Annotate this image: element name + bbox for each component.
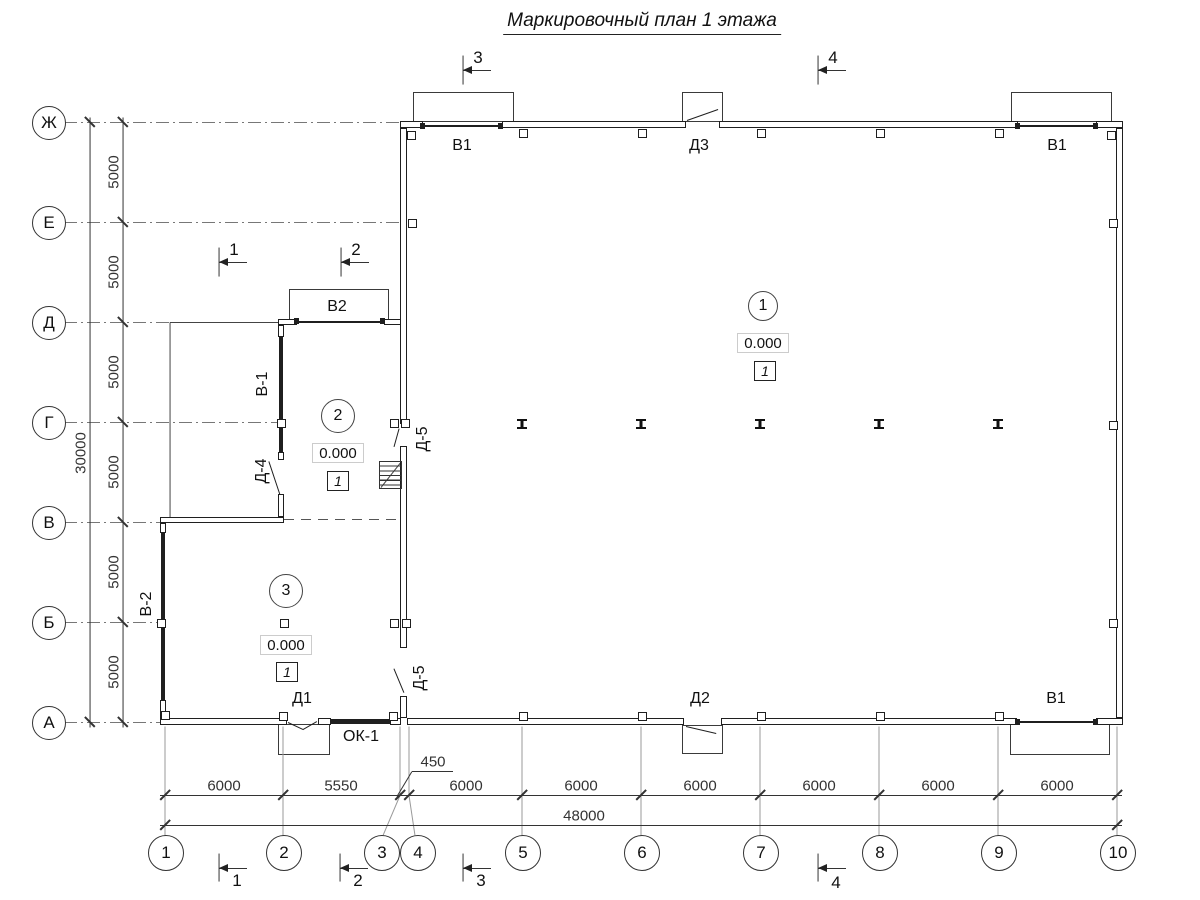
canopy-outline bbox=[1011, 92, 1112, 122]
dimension-text: 5550 bbox=[324, 778, 357, 795]
axis-circle-column: 10 bbox=[1100, 835, 1136, 871]
wall-segment bbox=[719, 121, 1018, 128]
canopy-outline bbox=[1010, 722, 1110, 755]
page-title: Маркировочный план 1 этажа bbox=[503, 10, 781, 35]
stairs-symbol bbox=[379, 461, 402, 489]
axis-circle-row: А bbox=[32, 706, 66, 740]
section-marker-arrow-icon bbox=[219, 864, 228, 872]
dimension-text: 6000 bbox=[921, 778, 954, 795]
i-beam-column bbox=[517, 419, 527, 429]
wall-segment bbox=[278, 494, 284, 517]
extension-line bbox=[1117, 727, 1118, 836]
section-marker-label: 1 bbox=[229, 240, 238, 260]
wall-segment bbox=[1096, 718, 1123, 725]
section-marker-arrow-icon bbox=[818, 864, 827, 872]
axis-line bbox=[64, 222, 400, 223]
extension-line bbox=[760, 727, 761, 836]
opening-label: Д-5 bbox=[411, 665, 429, 690]
pilaster-mark bbox=[638, 129, 647, 138]
pilaster-mark bbox=[995, 712, 1004, 721]
dimension-text: 6000 bbox=[683, 778, 716, 795]
pilaster-mark bbox=[638, 712, 647, 721]
gate-end-mark bbox=[1015, 123, 1020, 129]
opening-label: Д-5 bbox=[414, 426, 432, 451]
extension-line bbox=[409, 795, 416, 835]
pilaster-mark bbox=[402, 619, 411, 628]
pilaster-mark bbox=[1109, 619, 1118, 628]
window-band bbox=[330, 719, 390, 724]
gate-end-mark bbox=[498, 123, 503, 129]
section-marker-arrow-icon bbox=[341, 258, 350, 266]
window-band bbox=[279, 337, 283, 452]
section-marker-label: 4 bbox=[831, 873, 840, 893]
opening-label: ОК-1 bbox=[343, 728, 379, 746]
pilaster-mark bbox=[1109, 219, 1118, 228]
pilaster-mark bbox=[757, 712, 766, 721]
axis-circle-column: 4 bbox=[400, 835, 436, 871]
extension-line bbox=[400, 727, 401, 796]
dimension-text: 5000 bbox=[106, 655, 123, 688]
dimension-text: 48000 bbox=[563, 808, 605, 825]
floor-type-box: 1 bbox=[276, 662, 298, 682]
gate-end-mark bbox=[380, 318, 385, 324]
section-marker-label: 1 bbox=[232, 871, 241, 891]
axis-circle-row: Ж bbox=[32, 106, 66, 140]
pilaster-mark bbox=[876, 129, 885, 138]
canopy-outline bbox=[413, 92, 514, 122]
wall-segment bbox=[400, 696, 407, 718]
pilaster-mark bbox=[757, 129, 766, 138]
axis-circle-column: 1 bbox=[148, 835, 184, 871]
room-number-circle: 1 bbox=[748, 291, 778, 321]
pilaster-mark bbox=[1107, 131, 1116, 140]
opening-label: Д3 bbox=[689, 137, 709, 155]
gate-end-mark bbox=[294, 318, 299, 324]
axis-circle-row: В bbox=[32, 506, 66, 540]
extension-line bbox=[165, 727, 166, 836]
opening-label: В2 bbox=[327, 298, 347, 316]
axis-circle-column: 9 bbox=[981, 835, 1017, 871]
gate-end-mark bbox=[420, 123, 425, 129]
opening-label: Д1 bbox=[292, 690, 312, 708]
axis-circle-row: Е bbox=[32, 206, 66, 240]
i-beam-column bbox=[755, 419, 765, 429]
axis-circle-row: Д bbox=[32, 306, 66, 340]
extension-line bbox=[641, 727, 642, 836]
section-marker-label: 3 bbox=[473, 48, 482, 68]
pilaster-mark bbox=[407, 131, 416, 140]
dimension-text: 5000 bbox=[106, 255, 123, 288]
i-beam-column bbox=[636, 419, 646, 429]
extension-line bbox=[283, 727, 284, 836]
pilaster-mark bbox=[280, 619, 289, 628]
opening-label: Д-4 bbox=[253, 458, 271, 483]
dimension-text: 5000 bbox=[106, 455, 123, 488]
wall-segment bbox=[278, 452, 284, 460]
wall-segment bbox=[1096, 121, 1123, 128]
pilaster-mark bbox=[161, 711, 170, 720]
gate-end-mark bbox=[1093, 719, 1098, 725]
section-marker-arrow-icon bbox=[340, 864, 349, 872]
pilaster-mark bbox=[157, 619, 166, 628]
elevation-box: 0.000 bbox=[737, 333, 789, 353]
i-beam-column bbox=[993, 419, 1003, 429]
extension-line bbox=[879, 727, 880, 836]
opening-label: Д2 bbox=[690, 690, 710, 708]
elevation-box: 0.000 bbox=[312, 443, 364, 463]
dimension-leader bbox=[412, 771, 453, 772]
floor-plan-canvas: Маркировочный план 1 этажа ЖЕДГВБА123456… bbox=[0, 0, 1200, 900]
pilaster-mark bbox=[277, 419, 286, 428]
pilaster-mark bbox=[390, 419, 399, 428]
elevation-box: 0.000 bbox=[260, 635, 312, 655]
door-leaf bbox=[393, 428, 399, 446]
wall-segment bbox=[384, 319, 401, 325]
section-marker-arrow-icon bbox=[463, 66, 472, 74]
wall-segment bbox=[160, 718, 287, 725]
axis-circle-column: 6 bbox=[624, 835, 660, 871]
dimension-text: 6000 bbox=[449, 778, 482, 795]
axis-line bbox=[64, 122, 400, 123]
axis-line bbox=[64, 522, 160, 523]
floor-type-box: 1 bbox=[754, 361, 776, 381]
wall-segment bbox=[502, 121, 686, 128]
gate-end-mark bbox=[1093, 123, 1098, 129]
dimension-text: 5000 bbox=[106, 355, 123, 388]
axis-line bbox=[64, 722, 160, 723]
room-number-circle: 3 bbox=[269, 574, 303, 608]
axis-dashed-line bbox=[284, 519, 400, 520]
dimension-text: 5000 bbox=[106, 155, 123, 188]
plan-thin-line bbox=[169, 323, 170, 518]
dimension-line bbox=[160, 825, 1122, 826]
dimension-text: 6000 bbox=[207, 778, 240, 795]
window-band bbox=[161, 533, 165, 700]
dimension-text: 30000 bbox=[73, 432, 90, 474]
pilaster-mark bbox=[389, 712, 398, 721]
extension-line bbox=[383, 795, 401, 835]
section-marker-label: 3 bbox=[476, 871, 485, 891]
axis-circle-column: 2 bbox=[266, 835, 302, 871]
section-marker-label: 4 bbox=[828, 48, 837, 68]
gate-line bbox=[423, 125, 502, 127]
wall-segment bbox=[278, 325, 284, 337]
pilaster-mark bbox=[408, 219, 417, 228]
axis-circle-column: 8 bbox=[862, 835, 898, 871]
gate-line bbox=[297, 321, 384, 323]
section-marker-arrow-icon bbox=[818, 66, 827, 74]
gate-end-mark bbox=[1015, 719, 1020, 725]
plan-thin-line bbox=[170, 322, 278, 323]
extension-line bbox=[522, 727, 523, 836]
pilaster-mark bbox=[995, 129, 1004, 138]
axis-line bbox=[64, 422, 278, 423]
dimension-text: 450 bbox=[420, 754, 445, 771]
extension-line bbox=[409, 727, 410, 796]
dimension-line bbox=[89, 118, 90, 728]
pilaster-mark bbox=[279, 712, 288, 721]
pilaster-mark bbox=[390, 619, 399, 628]
pilaster-mark bbox=[1109, 421, 1118, 430]
axis-circle-column: 7 bbox=[743, 835, 779, 871]
opening-label: В-2 bbox=[138, 592, 156, 617]
axis-circle-column: 3 bbox=[364, 835, 400, 871]
section-marker-arrow-icon bbox=[463, 864, 472, 872]
pilaster-mark bbox=[519, 129, 528, 138]
gate-line bbox=[1018, 125, 1096, 127]
axis-line bbox=[64, 622, 160, 623]
axis-circle-column: 5 bbox=[505, 835, 541, 871]
opening-label: В-1 bbox=[254, 372, 272, 397]
door-leaf bbox=[393, 668, 404, 692]
dimension-text: 6000 bbox=[564, 778, 597, 795]
section-marker-arrow-icon bbox=[219, 258, 228, 266]
canopy-outline bbox=[682, 92, 723, 122]
pilaster-mark bbox=[519, 712, 528, 721]
floor-type-box: 1 bbox=[327, 471, 349, 491]
gate-line bbox=[1018, 721, 1096, 723]
section-marker-label: 2 bbox=[353, 871, 362, 891]
wall-segment bbox=[160, 517, 284, 523]
opening-label: В1 bbox=[1046, 690, 1066, 708]
pilaster-mark bbox=[876, 712, 885, 721]
axis-line bbox=[64, 322, 170, 323]
opening-label: В1 bbox=[452, 137, 472, 155]
wall-segment bbox=[400, 128, 407, 424]
i-beam-column bbox=[874, 419, 884, 429]
section-marker-label: 2 bbox=[351, 240, 360, 260]
dimension-text: 5000 bbox=[106, 555, 123, 588]
axis-circle-row: Г bbox=[32, 406, 66, 440]
dimension-text: 6000 bbox=[802, 778, 835, 795]
pilaster-mark bbox=[401, 419, 410, 428]
room-number-circle: 2 bbox=[321, 399, 355, 433]
extension-line bbox=[998, 727, 999, 836]
dimension-text: 6000 bbox=[1040, 778, 1073, 795]
wall-segment bbox=[160, 523, 166, 533]
opening-label: В1 bbox=[1047, 137, 1067, 155]
axis-circle-row: Б bbox=[32, 606, 66, 640]
